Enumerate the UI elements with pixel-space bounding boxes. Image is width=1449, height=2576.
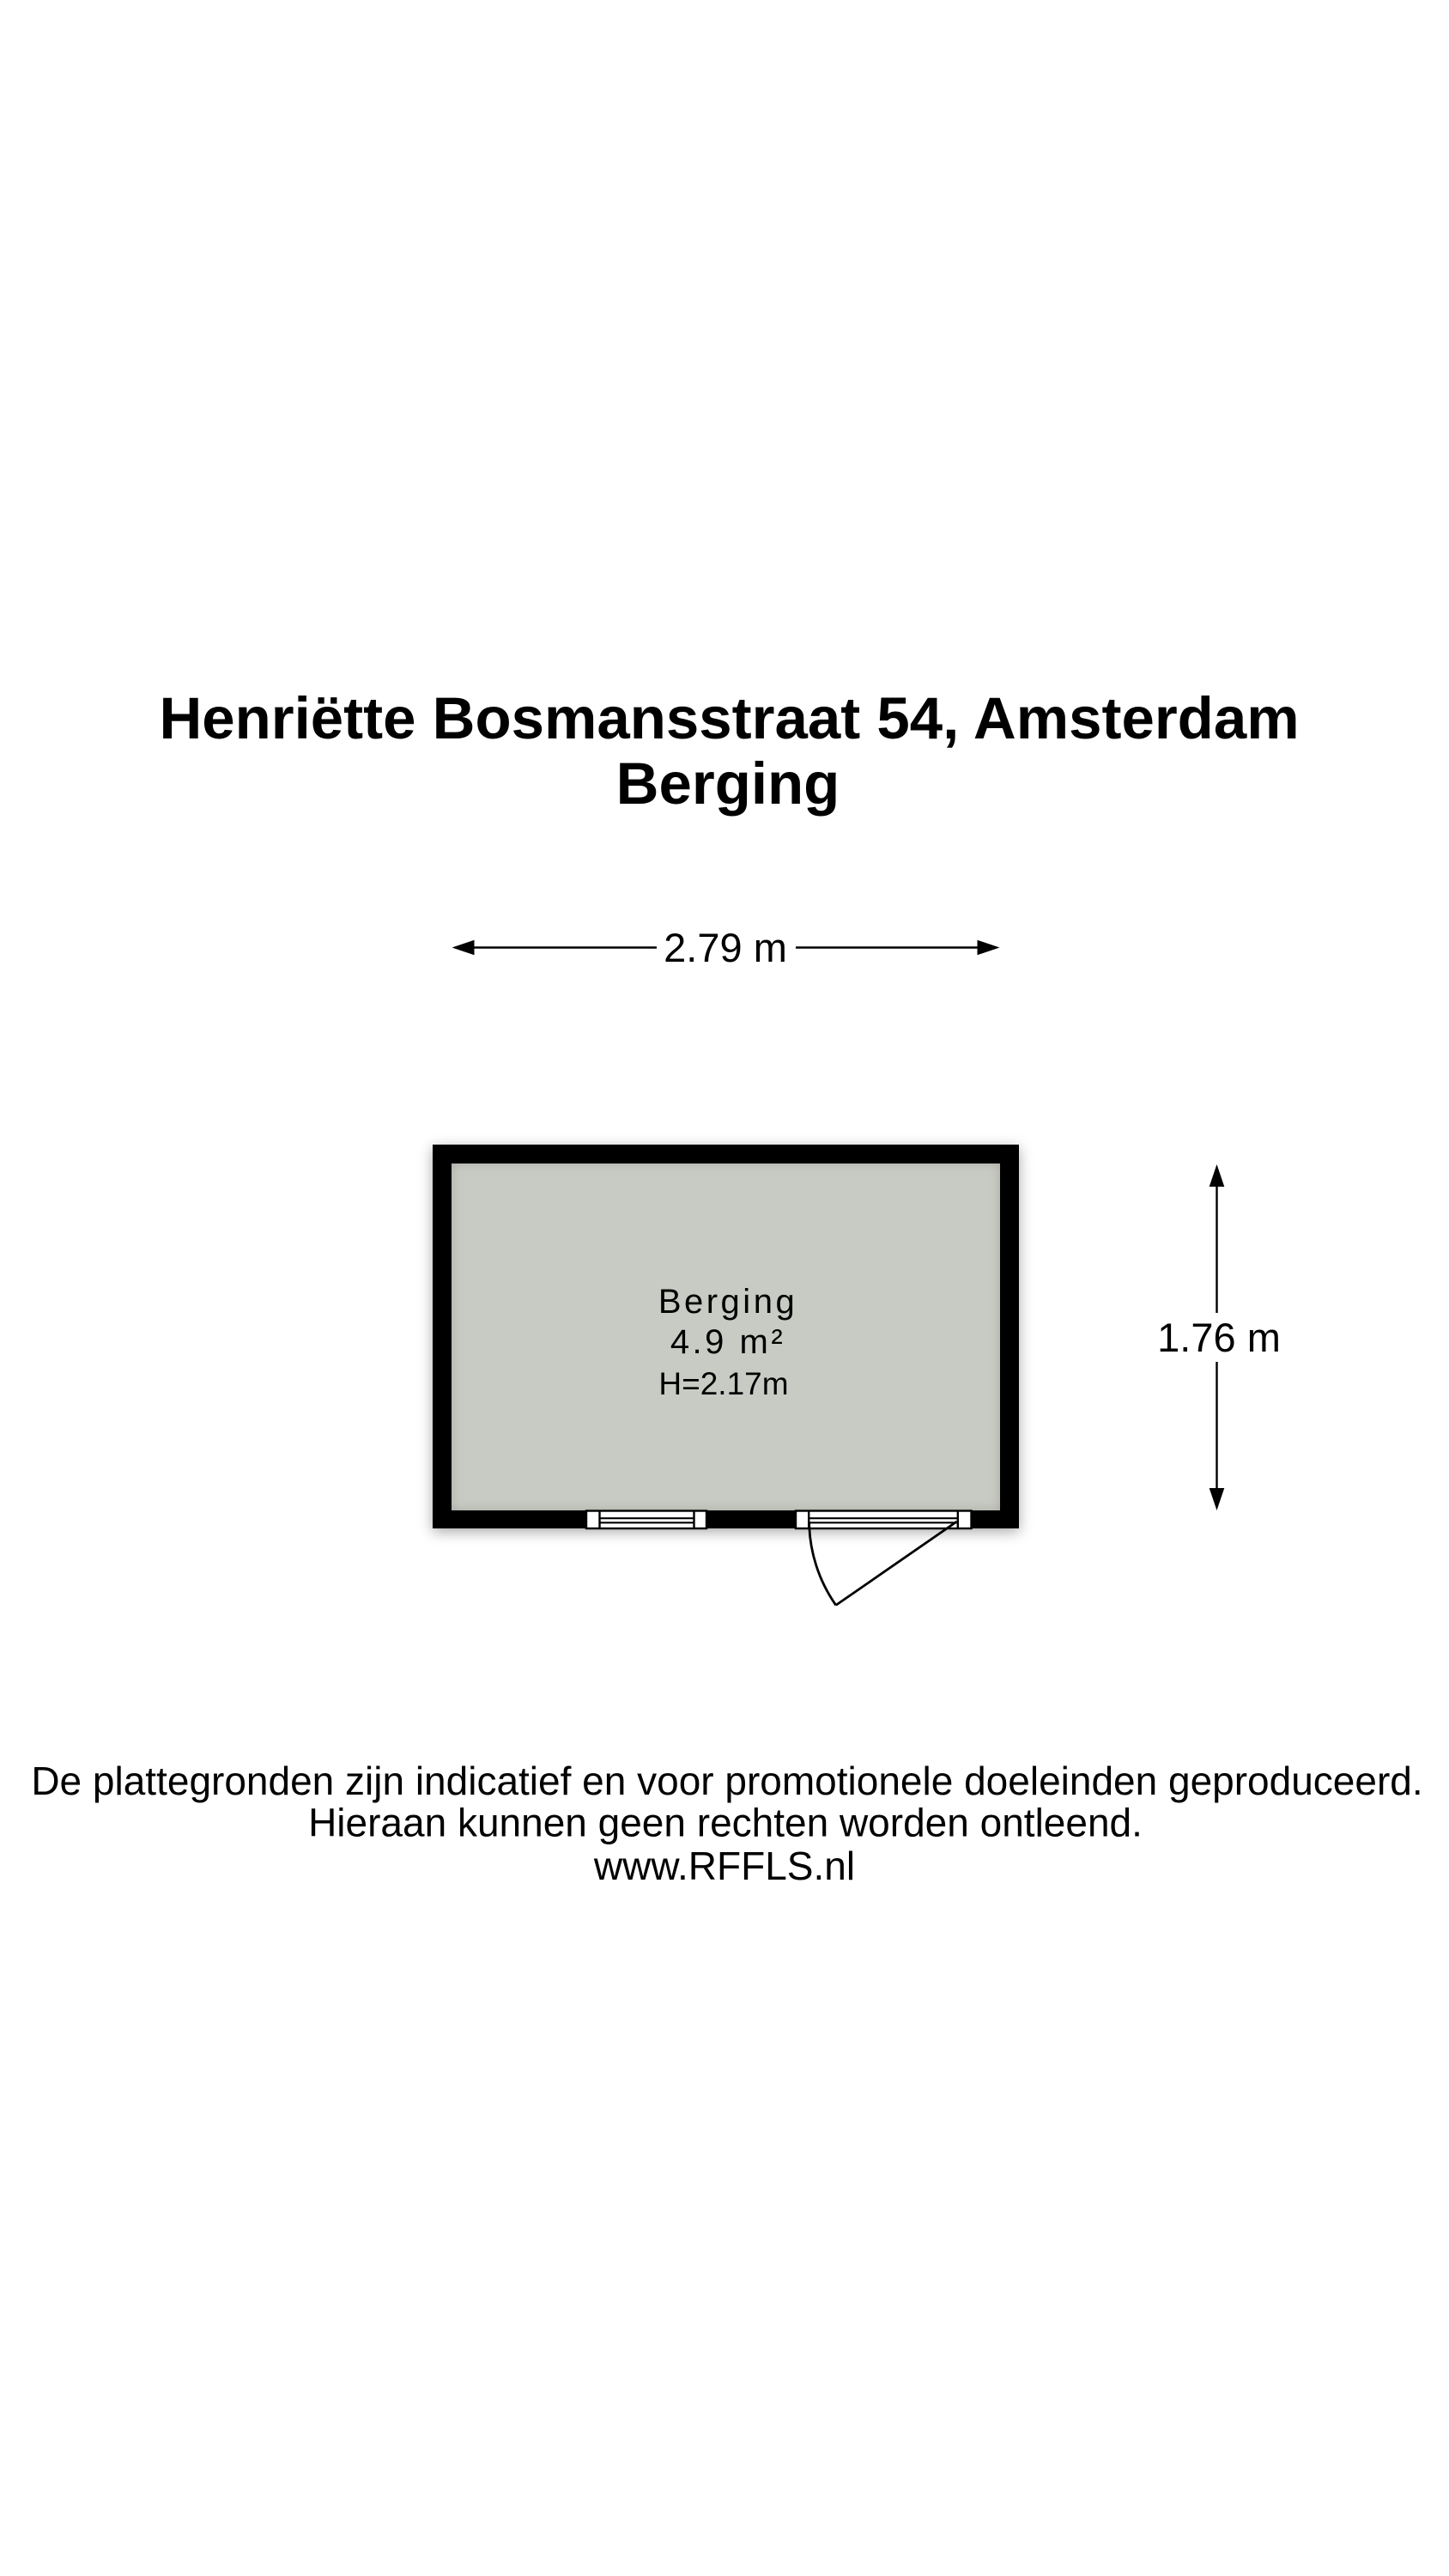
svg-text:www.RFFLS.nl: www.RFFLS.nl <box>593 1844 855 1888</box>
svg-text:Hieraan kunnen geen rechten wo: Hieraan kunnen geen rechten worden ontle… <box>308 1801 1143 1845</box>
svg-text:Berging: Berging <box>658 1283 797 1321</box>
svg-text:2.79 m: 2.79 m <box>664 925 787 970</box>
svg-text:Berging: Berging <box>616 750 840 817</box>
svg-text:De plattegronden zijn indicati: De plattegronden zijn indicatief en voor… <box>31 1759 1422 1803</box>
svg-text:H=2.17m: H=2.17m <box>658 1366 788 1401</box>
svg-text:Henriëtte Bosmansstraat 54, Am: Henriëtte Bosmansstraat 54, Amsterdam <box>159 685 1299 751</box>
svg-text:4.9 m²: 4.9 m² <box>670 1323 785 1361</box>
svg-text:1.76 m: 1.76 m <box>1157 1315 1281 1360</box>
